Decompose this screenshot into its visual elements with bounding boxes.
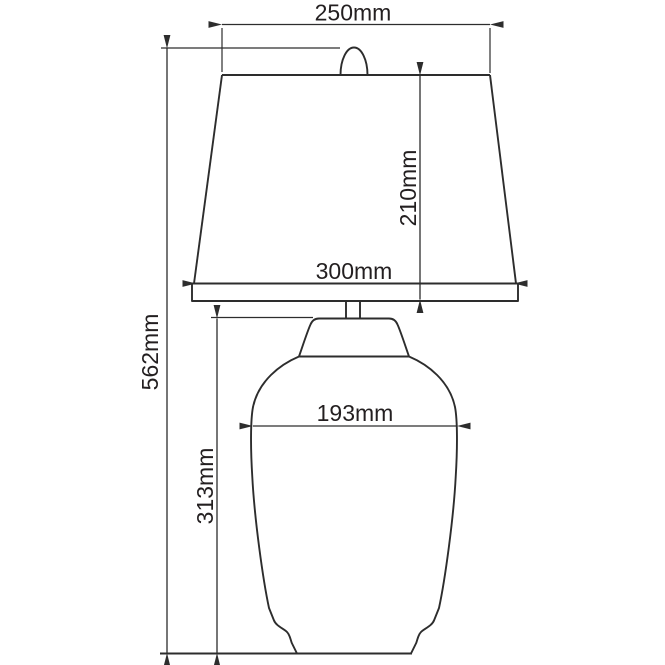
label-shade-height: 210mm: [395, 150, 421, 227]
lamp-outline: [160, 48, 518, 654]
body-right-profile: [409, 357, 457, 654]
label-shade-top-width: 250mm: [315, 0, 392, 26]
shade-left-edge: [194, 75, 222, 284]
body-left-profile: [251, 357, 299, 654]
label-overall-height: 562mm: [137, 314, 163, 391]
dimension-labels: 250mm 210mm 300mm 562mm 193mm 313mm: [137, 0, 421, 524]
lamp-stem: [346, 301, 360, 318]
label-shade-bottom-width: 300mm: [316, 258, 393, 284]
finial-arc: [341, 48, 368, 76]
shade-bottom-rim: [192, 284, 518, 302]
dimension-lines: [161, 25, 514, 654]
lamp-dimension-drawing: 250mm 210mm 300mm 562mm 193mm 313mm: [0, 0, 665, 665]
shade-right-edge: [490, 75, 516, 284]
body-neck: [299, 319, 409, 357]
label-body-width: 193mm: [317, 400, 394, 426]
drawing-canvas: 250mm 210mm 300mm 562mm 193mm 313mm: [0, 0, 665, 665]
label-body-height: 313mm: [192, 448, 218, 525]
